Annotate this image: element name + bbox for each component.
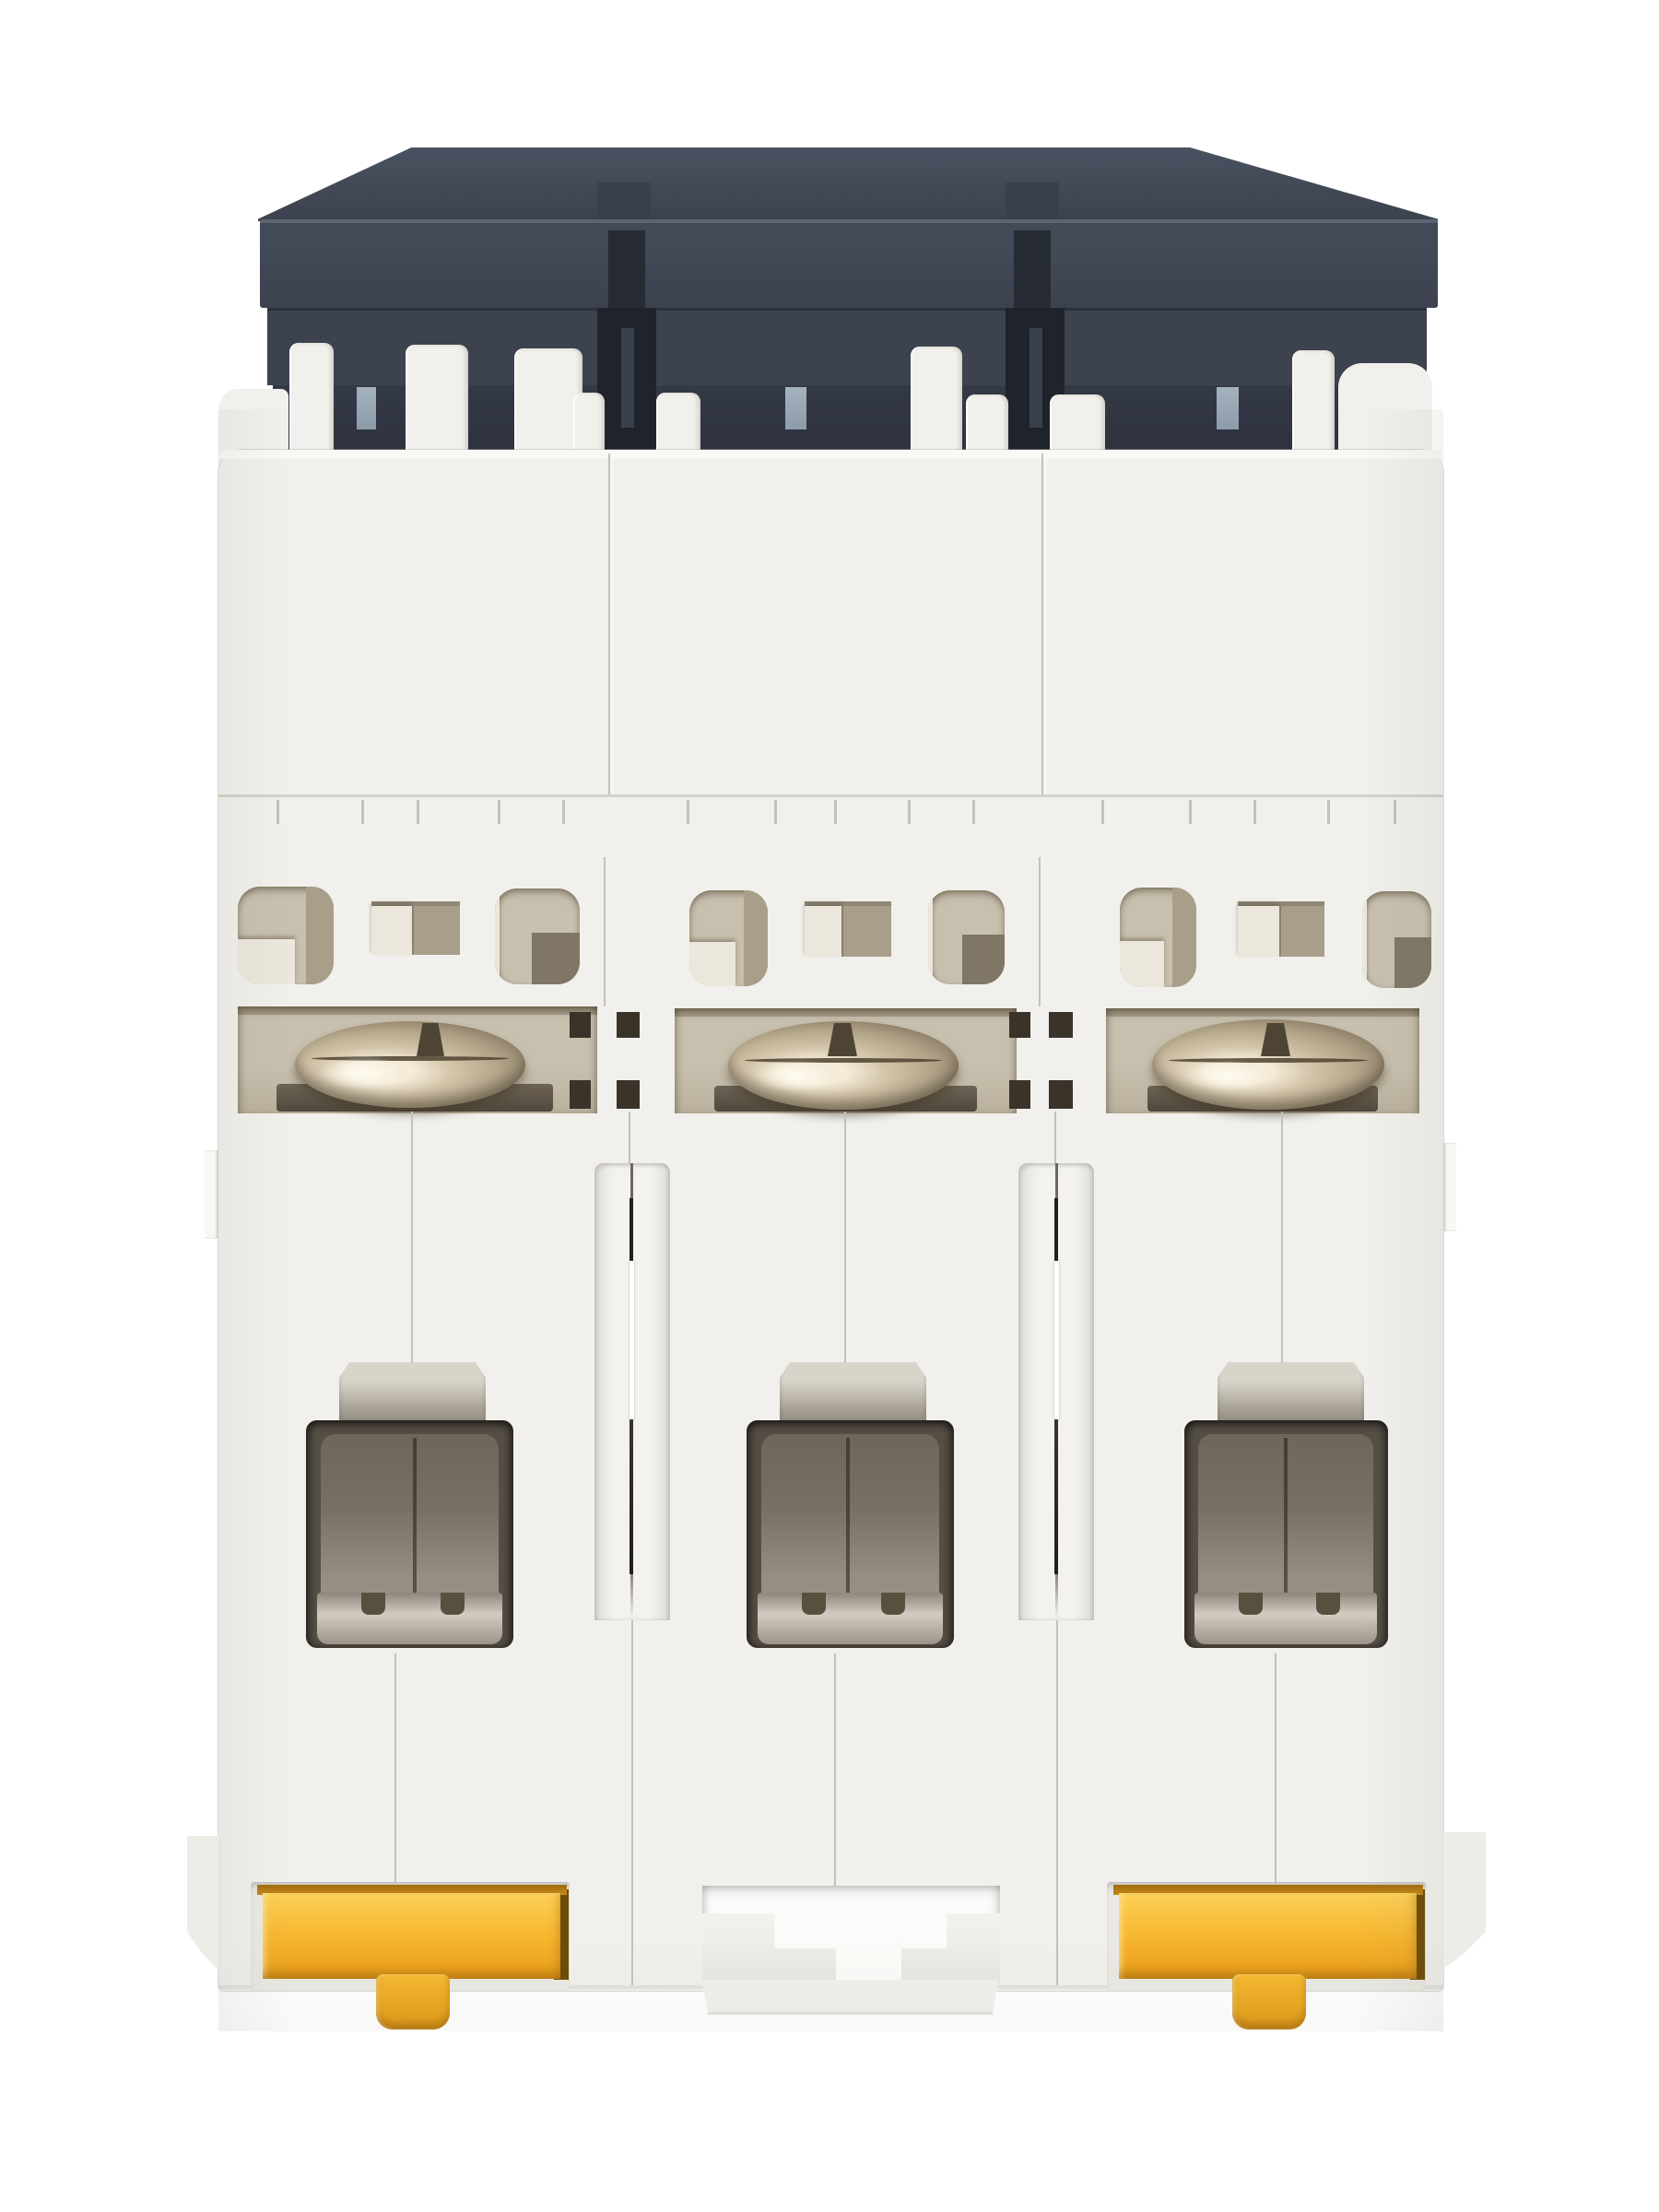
side-notch-left bbox=[205, 1150, 218, 1239]
toggle-cap-step-right bbox=[1006, 182, 1059, 221]
ledge-notch bbox=[276, 800, 279, 824]
divider-hole bbox=[1049, 1080, 1073, 1109]
vent-inner-shade bbox=[1172, 888, 1196, 987]
pole-centre-seam bbox=[844, 1112, 846, 1362]
vent-inner-step bbox=[1120, 941, 1164, 987]
body-top-highlight bbox=[218, 450, 1443, 459]
vent-window-dark-half bbox=[843, 906, 891, 957]
pole-seam bbox=[631, 1620, 633, 1987]
din-clip-1 bbox=[263, 1893, 560, 1979]
side-notch-right bbox=[1443, 1143, 1456, 1231]
pole-centre-seam bbox=[1281, 1112, 1283, 1362]
din-rail-slot-lip bbox=[696, 1980, 1005, 2015]
vent-window-3 bbox=[1238, 901, 1324, 957]
vent-opening-left-3 bbox=[1120, 888, 1196, 987]
pole-seam bbox=[1041, 453, 1043, 796]
terminal-cage-foot-3 bbox=[1239, 1593, 1263, 1615]
vent-inner-shade bbox=[1394, 937, 1431, 988]
divider-gap-1 bbox=[629, 1419, 633, 1574]
vent-window-light-half bbox=[371, 906, 412, 955]
ledge-notch bbox=[687, 800, 689, 824]
indicator-window-1 bbox=[357, 387, 376, 429]
breaker-photo bbox=[0, 0, 1659, 2212]
pole-seam-light bbox=[611, 453, 613, 796]
vent-inner-step bbox=[689, 942, 735, 986]
terminal-clamp-plate-3 bbox=[1218, 1362, 1364, 1427]
terminal-cage-split-3 bbox=[1284, 1438, 1288, 1609]
divider-gap-light-1 bbox=[629, 1261, 634, 1419]
rail-flange-right bbox=[1441, 1832, 1486, 1971]
vent-window-2 bbox=[805, 901, 891, 957]
breaker-body bbox=[218, 450, 1443, 1991]
vent-inner-shade bbox=[962, 935, 1005, 984]
vent-opening-right-3 bbox=[1362, 891, 1431, 988]
vent-inner-step bbox=[238, 939, 295, 984]
housing-tab bbox=[289, 343, 334, 463]
pole-centre-seam bbox=[834, 1653, 836, 1886]
ledge-notch bbox=[774, 800, 777, 824]
vent-window-dark-half bbox=[1281, 906, 1324, 957]
vent-inner-shade bbox=[532, 933, 580, 984]
divider-hole bbox=[617, 1080, 640, 1109]
ledge-notch bbox=[1253, 800, 1256, 824]
divider-hole bbox=[570, 1012, 591, 1038]
terminal-cage-foot-2 bbox=[802, 1593, 826, 1615]
vent-window-light-half bbox=[805, 906, 841, 957]
ledge-notch bbox=[972, 800, 975, 824]
terminal-cage-1 bbox=[321, 1434, 499, 1615]
terminal-clamp-plate-1 bbox=[339, 1362, 486, 1427]
divider-gap-fade-1 bbox=[630, 1574, 633, 1618]
vent-opening-right-2 bbox=[928, 890, 1005, 984]
screw-highlight-2 bbox=[754, 1060, 837, 1091]
divider-gap-2 bbox=[1055, 1163, 1058, 1200]
divider-hole bbox=[1049, 1012, 1073, 1038]
terminal-cage-foot-1 bbox=[361, 1593, 385, 1615]
ledge-notch bbox=[1327, 800, 1330, 824]
divider-gap-1 bbox=[630, 1163, 633, 1200]
pole-seam bbox=[1056, 1620, 1058, 1987]
housing-tab bbox=[514, 348, 582, 463]
terminal-cage-foot-3 bbox=[1316, 1593, 1340, 1615]
pole-centre-seam bbox=[411, 1112, 413, 1362]
vent-inner-edge bbox=[928, 890, 933, 984]
terminal-clamp-plate-2 bbox=[780, 1362, 926, 1427]
ledge-notch bbox=[908, 800, 911, 824]
din-clip-3 bbox=[1119, 1893, 1417, 1979]
divider-hole bbox=[1009, 1080, 1030, 1109]
vent-window-light-half bbox=[1238, 906, 1279, 957]
terminal-cage-split-2 bbox=[846, 1438, 850, 1609]
ledge-notch bbox=[498, 800, 500, 824]
pole-seam-light bbox=[1044, 453, 1046, 796]
vent-window-dark-half bbox=[414, 906, 460, 955]
pole-divider-slot-ridge-1 bbox=[621, 328, 634, 428]
pole-divider-notch-1 bbox=[608, 230, 645, 308]
indicator-window-3 bbox=[1217, 387, 1239, 429]
toggle-cap-step-left bbox=[597, 182, 651, 221]
pole-centre-seam bbox=[1275, 1653, 1277, 1886]
pole-seam bbox=[1054, 1112, 1056, 1163]
vent-inner-shade bbox=[306, 887, 334, 984]
divider-hole bbox=[570, 1080, 591, 1109]
din-clip-tab-3 bbox=[1232, 1974, 1306, 2030]
ledge-notch bbox=[1101, 800, 1104, 824]
terminal-cage-base-3 bbox=[1194, 1593, 1377, 1644]
divider-gap-2 bbox=[1054, 1198, 1058, 1261]
ledge-notch bbox=[417, 800, 419, 824]
rail-flange-left bbox=[187, 1836, 220, 1972]
divider-gap-light-2 bbox=[1054, 1261, 1059, 1419]
divider-hole bbox=[617, 1012, 640, 1038]
divider-gap-fade-2 bbox=[1055, 1574, 1058, 1618]
pole-divider-notch-2 bbox=[1014, 230, 1051, 308]
ledge-line bbox=[218, 794, 1443, 797]
din-clip-tab-1 bbox=[376, 1974, 450, 2030]
ledge-notch bbox=[361, 800, 364, 824]
ledge-notch bbox=[1394, 800, 1396, 824]
terminal-cage-foot-2 bbox=[881, 1593, 905, 1615]
toggle-bar bbox=[260, 219, 1438, 308]
divider-gap-1 bbox=[629, 1198, 633, 1261]
divider-hole bbox=[1009, 1012, 1030, 1038]
housing-tab bbox=[406, 345, 468, 463]
terminal-cage-split-1 bbox=[413, 1438, 417, 1609]
vent-opening-left-1 bbox=[238, 887, 334, 984]
ledge-notch bbox=[562, 800, 565, 824]
pole-seam bbox=[604, 857, 606, 1006]
terminal-cage-base-1 bbox=[317, 1593, 502, 1644]
toggle-cap-top-face bbox=[258, 147, 1438, 221]
vent-inner-shade bbox=[744, 890, 768, 986]
pole-centre-seam bbox=[394, 1653, 396, 1886]
pole-seam bbox=[629, 1112, 630, 1163]
indicator-window-2 bbox=[785, 387, 806, 429]
vent-opening-left-2 bbox=[689, 890, 768, 986]
housing-tab bbox=[1292, 350, 1335, 463]
screw-highlight-3 bbox=[1185, 1060, 1270, 1091]
vent-inner-edge bbox=[495, 888, 500, 984]
vent-opening-right-1 bbox=[495, 888, 580, 984]
vent-window-1 bbox=[371, 901, 460, 955]
housing-tab bbox=[911, 347, 962, 463]
terminal-cage-base-2 bbox=[758, 1593, 943, 1644]
screw-highlight-1 bbox=[319, 1056, 407, 1089]
pole-seam bbox=[1039, 857, 1041, 1006]
pole-divider-slot-ridge-2 bbox=[1030, 328, 1042, 428]
ledge-notch bbox=[834, 800, 837, 824]
terminal-cage-foot-1 bbox=[441, 1593, 465, 1615]
pole-seam bbox=[608, 453, 610, 796]
terminal-cage-2 bbox=[761, 1434, 939, 1615]
vent-inner-edge bbox=[1362, 891, 1367, 988]
ledge-notch bbox=[1189, 800, 1192, 824]
divider-gap-2 bbox=[1054, 1419, 1058, 1574]
